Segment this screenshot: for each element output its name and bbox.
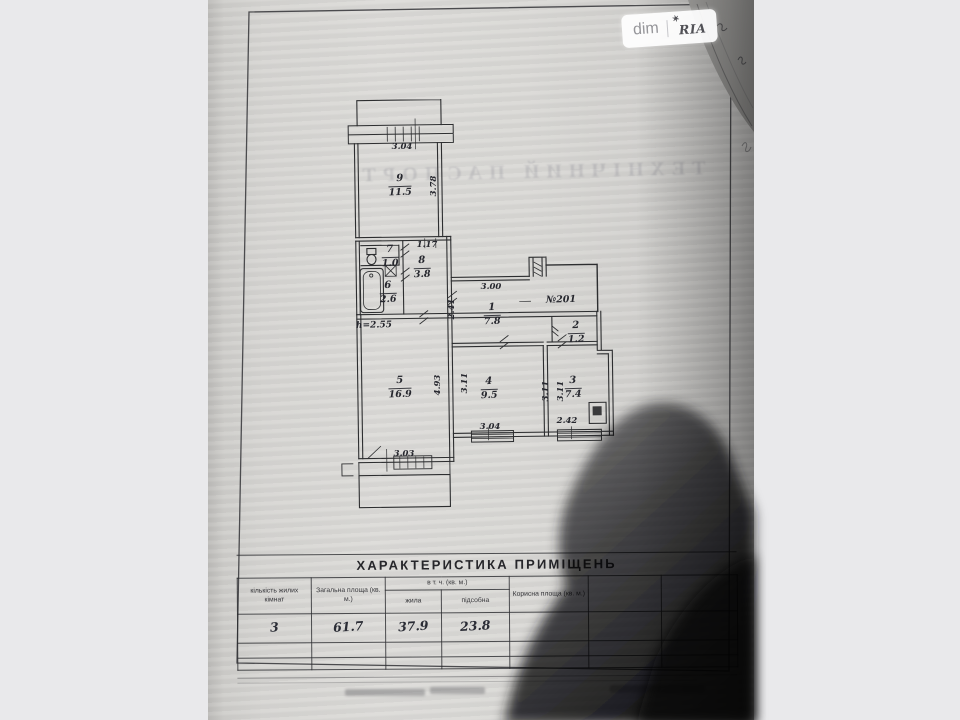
dimension-label: 3.04 xyxy=(392,143,413,152)
room-label-4: 49.5 xyxy=(480,377,497,401)
faint-rule xyxy=(237,674,737,678)
header-living-area: жила xyxy=(385,589,441,612)
ceiling-height-note: h=2.55 xyxy=(356,321,392,331)
cell-empty-1 xyxy=(588,611,661,641)
room-label-2: 21.2 xyxy=(567,321,584,345)
cell-empty-2 xyxy=(661,610,737,640)
cell-living-area: 37.9 xyxy=(385,612,441,641)
dimension-label: 3.04 xyxy=(480,423,501,432)
room-label-7: 71.0 xyxy=(381,245,398,269)
room-label-9: 911.5 xyxy=(388,174,412,198)
header-empty-1 xyxy=(588,575,661,612)
room-label-6: 62.6 xyxy=(379,281,396,305)
cell-utility-area: 23.8 xyxy=(441,612,509,641)
room-label-1: 17.8 xyxy=(483,303,500,327)
header-including-group: в т. ч. (кв. м.) xyxy=(385,576,509,590)
cell-useful-area xyxy=(509,611,588,641)
dimension-label: 3.03 xyxy=(394,450,415,459)
dimension-label: 2.42 xyxy=(557,417,578,426)
dimria-watermark: dim ✶ RIA xyxy=(621,9,718,49)
room-characteristics-block: ХАРАКТЕРИСТИКА ПРИМІЩЕНЬ кількість жилих… xyxy=(237,551,738,683)
room-label-8: 83.8 xyxy=(413,256,430,280)
watermark-dim-text: dim xyxy=(621,19,667,42)
header-utility-area: підсобна xyxy=(441,589,509,612)
cell-total-area: 61.7 xyxy=(311,613,385,643)
room-characteristics-table: кількість жилих кімнат Загальна площа (к… xyxy=(237,574,739,670)
header-room-count: кількість жилих кімнат xyxy=(237,577,311,614)
dimension-label: 3.78 xyxy=(430,176,439,197)
dimension-label: 3.11 xyxy=(542,381,551,402)
header-total-area: Загальна площа (кв. м.) xyxy=(311,577,385,614)
watermark-ria-text: ✶ RIA xyxy=(667,16,715,37)
cell-room-count: 3 xyxy=(237,613,311,643)
apartment-number-label: №201 xyxy=(546,295,576,305)
room-label-5: 516.9 xyxy=(388,376,412,400)
dimension-label: 3.11 xyxy=(557,381,566,402)
dimension-label: 1.17 xyxy=(417,241,438,250)
dimension-label: 2.41 xyxy=(448,299,457,320)
dimension-label: 3.00 xyxy=(481,283,502,292)
dimension-label: 3.11 xyxy=(461,373,470,394)
table-title: ХАРАКТЕРИСТИКА ПРИМІЩЕНЬ xyxy=(237,555,737,574)
header-empty-2 xyxy=(661,574,737,611)
dimension-label: 4.93 xyxy=(434,375,443,396)
header-useful-area: Корисна площа (кв. м.) xyxy=(509,575,588,612)
star-icon: ✶ xyxy=(671,13,682,25)
room-label-3: 37.4 xyxy=(564,376,581,400)
scanned-floorplan-photo: ТЕХНІЧНИЙ ПАСПОРТ xyxy=(0,0,960,720)
